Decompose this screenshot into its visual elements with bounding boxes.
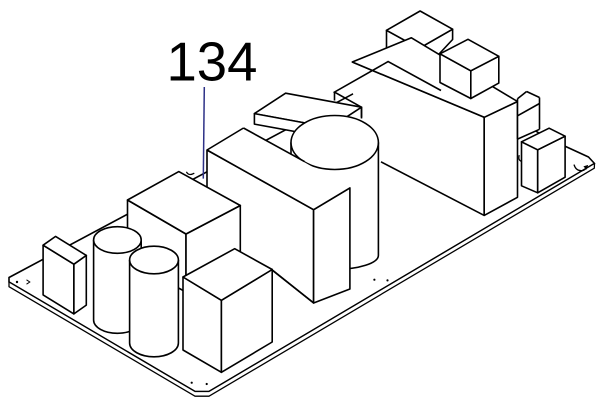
svg-text:134: 134 (167, 32, 258, 93)
